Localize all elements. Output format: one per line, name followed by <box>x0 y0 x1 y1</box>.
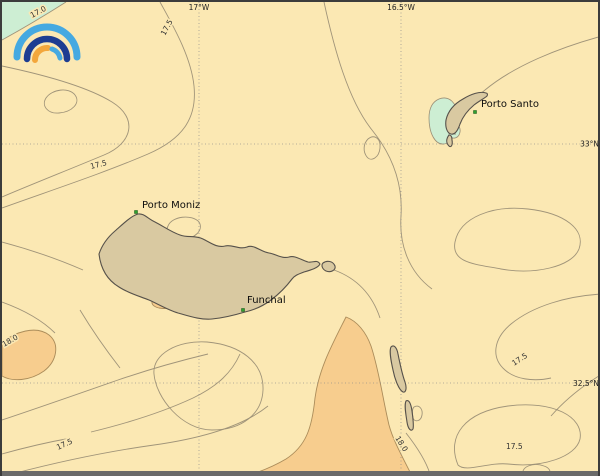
place-label-porto-santo: Porto Santo <box>481 99 539 110</box>
latitude-label-33n: 33°N <box>580 140 599 149</box>
latitude-label-32-5n: 32.5°N <box>573 379 599 388</box>
porto-santo-islet <box>447 135 453 147</box>
contour-label-17-5-bottom-right: 17.5 <box>506 442 523 451</box>
map-canvas: Porto Santo Porto Moniz Funchal 17.0 17.… <box>2 2 600 474</box>
madeira-east-islet <box>322 261 335 271</box>
longitude-label-16-5w: 16.5°W <box>387 3 415 12</box>
place-label-funchal: Funchal <box>247 295 286 306</box>
porto-moniz-marker <box>135 211 138 214</box>
bottom-frame-bar <box>2 471 598 476</box>
porto-santo-marker <box>474 111 477 114</box>
funchal-marker <box>242 309 245 312</box>
longitude-label-17w: 17°W <box>189 3 210 12</box>
place-label-porto-moniz: Porto Moniz <box>142 200 200 211</box>
temperature-contour-map: Porto Santo Porto Moniz Funchal 17.0 17.… <box>0 0 600 476</box>
